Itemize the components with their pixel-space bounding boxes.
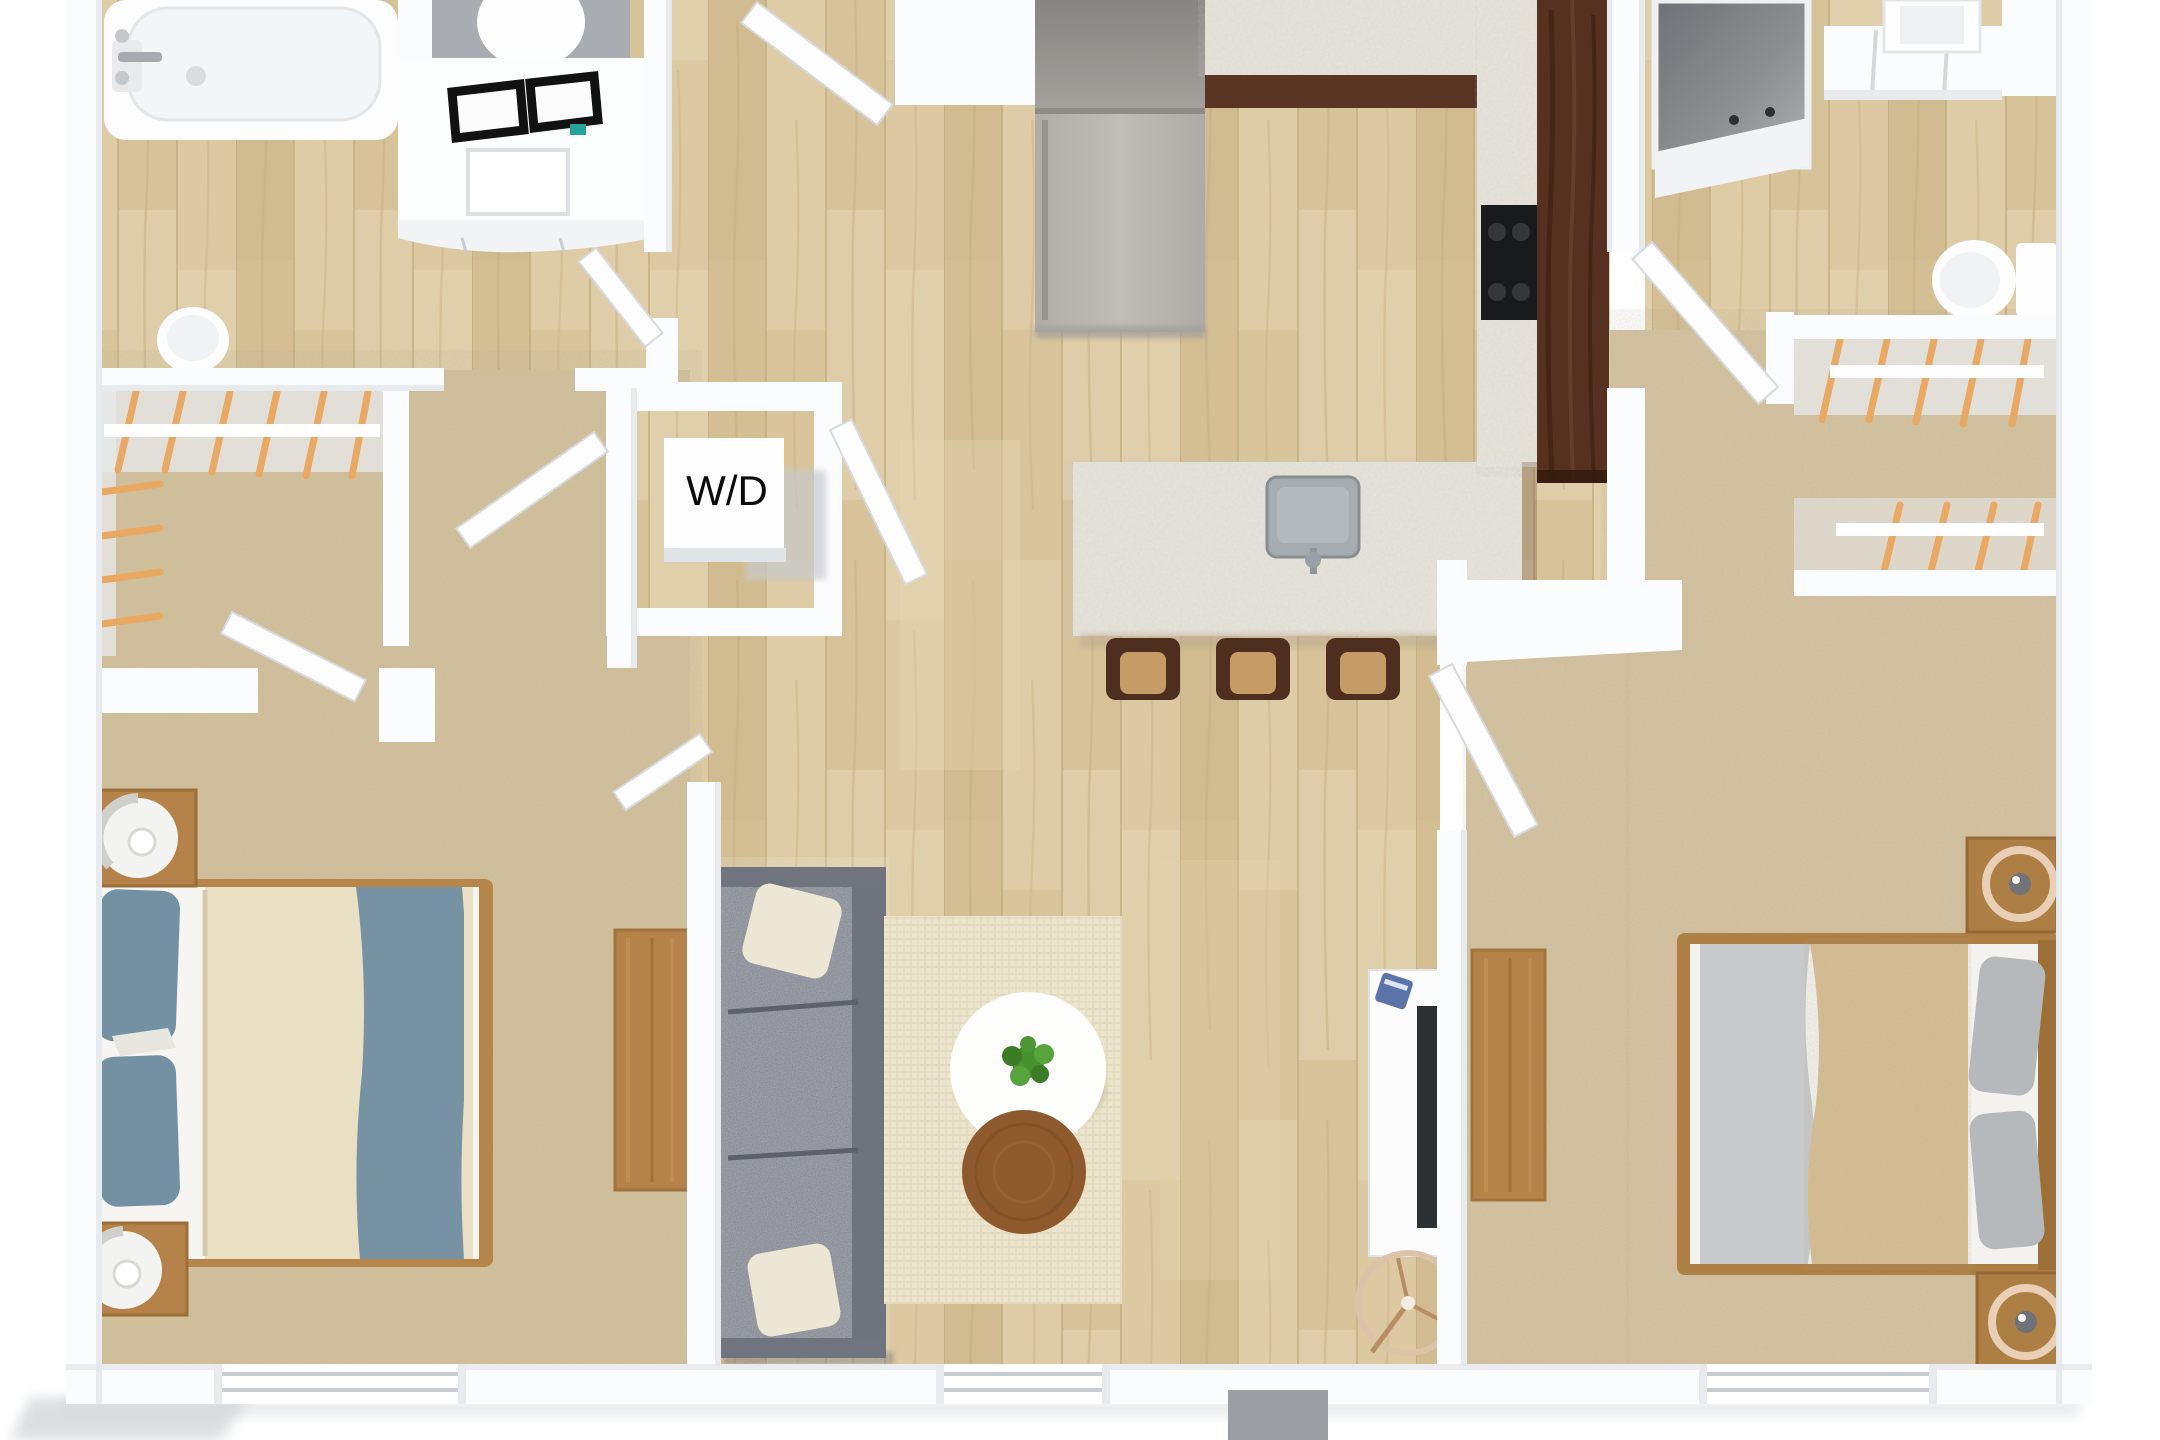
svg-text:W/D: W/D [686,467,768,514]
